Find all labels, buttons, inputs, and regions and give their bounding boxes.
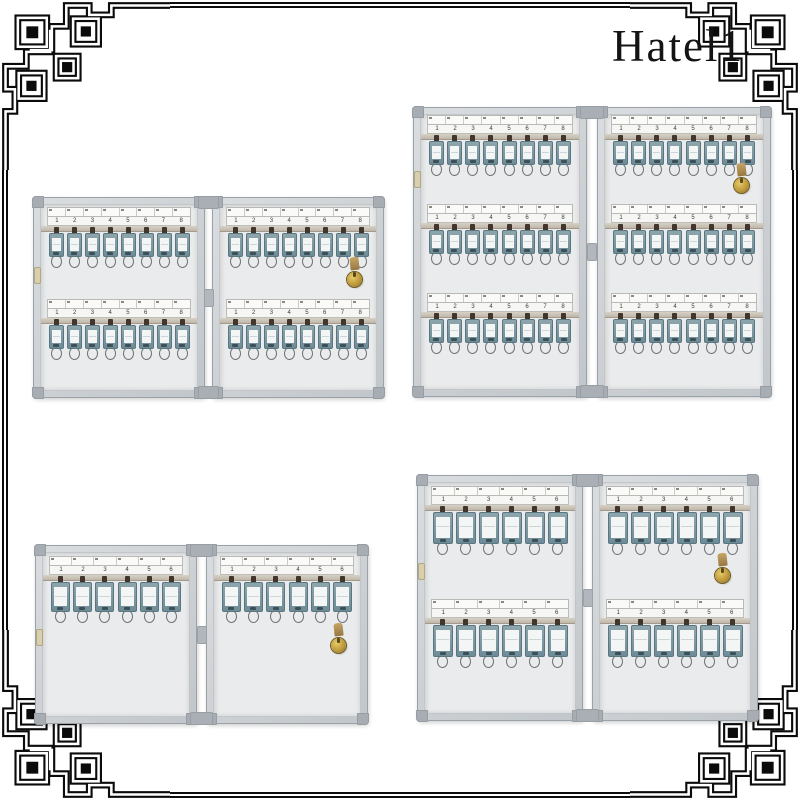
door-latch — [34, 267, 41, 284]
key-tag — [116, 576, 138, 623]
slot-number: 1 — [612, 303, 630, 311]
tag-row — [611, 313, 757, 354]
tag-slot — [304, 344, 310, 347]
tag-slot — [250, 344, 256, 347]
tag-row — [431, 506, 569, 555]
label-cell — [666, 294, 684, 302]
tag-body — [429, 319, 444, 343]
slot-number: 1 — [227, 217, 245, 225]
corner-cap — [373, 387, 385, 399]
key-tag — [427, 135, 445, 176]
tag-slot — [340, 607, 346, 610]
lock-cylinder — [734, 178, 749, 193]
slot-number: 1 — [227, 309, 245, 317]
label-cell — [500, 600, 523, 608]
tag-body — [103, 233, 118, 257]
tag-label — [707, 324, 716, 337]
tag-slot — [107, 344, 113, 347]
key-tag — [675, 506, 698, 555]
tag-slot — [617, 249, 623, 252]
tag-label — [142, 330, 151, 343]
corner-cap — [747, 474, 759, 486]
tag-label — [247, 587, 260, 606]
key-tag — [49, 576, 71, 623]
tag-label — [160, 238, 169, 251]
tag-slot — [654, 338, 660, 341]
key-tag — [629, 506, 652, 555]
label-cell — [612, 116, 630, 124]
label-cell — [139, 557, 161, 565]
tag-label — [121, 587, 134, 606]
tag-label — [436, 517, 450, 538]
key-tag — [500, 135, 518, 176]
cam-lock — [330, 623, 346, 651]
key-tag — [65, 319, 83, 360]
key-tag — [518, 313, 536, 354]
slot-number: 2 — [72, 566, 94, 574]
key-tag — [606, 506, 629, 555]
tag-slot — [250, 607, 256, 610]
key-tag — [244, 227, 262, 268]
slot-number: 6 — [702, 214, 720, 222]
key-tag — [721, 224, 739, 265]
label-cell — [537, 116, 555, 124]
key-cabinet-photo-top-right: 1234567812345678123456781234567812345678… — [413, 107, 771, 397]
key-tag — [702, 224, 720, 265]
slot-number: 4 — [666, 303, 684, 311]
tag-label — [124, 330, 133, 343]
tag-slot — [232, 344, 238, 347]
tag-slot — [161, 252, 167, 255]
tag-slot — [340, 252, 346, 255]
key-tag — [262, 319, 280, 360]
key-tag — [427, 313, 445, 354]
label-cell — [446, 294, 464, 302]
label-cell — [464, 294, 482, 302]
tag-label — [249, 238, 258, 251]
tag-body — [85, 233, 100, 257]
slot-number: 2 — [245, 217, 263, 225]
key-tag — [477, 506, 500, 555]
slot-number: 7 — [155, 217, 173, 225]
tag-body — [631, 141, 646, 165]
tag-slot — [561, 160, 567, 163]
hinge-cap — [198, 386, 219, 399]
label-cell — [50, 557, 72, 565]
tag-label — [336, 587, 349, 606]
key-tag — [280, 319, 298, 360]
number-strip: 12345678 — [611, 125, 757, 134]
tag-body — [483, 141, 498, 165]
tag-label — [160, 330, 169, 343]
tag-slot — [690, 160, 696, 163]
tag-slot — [672, 160, 678, 163]
slot-number: 2 — [630, 496, 653, 504]
tag-slot — [125, 344, 131, 347]
slot-number: 8 — [554, 125, 572, 133]
label-strip — [431, 599, 569, 609]
slot-number: 3 — [648, 214, 666, 222]
cabinet-panel: 123456781234567812345678 — [413, 107, 587, 397]
tag-slot — [470, 338, 476, 341]
tag-label — [88, 238, 97, 251]
number-strip: 123456 — [606, 496, 744, 505]
label-cell — [352, 208, 369, 216]
hinge-knuckle — [587, 243, 597, 261]
label-cell — [137, 300, 155, 308]
label-cell — [653, 487, 676, 495]
lock-key — [736, 163, 746, 177]
tag-body — [354, 233, 369, 257]
slot-number: 2 — [630, 214, 648, 222]
slot-number: 1 — [428, 125, 446, 133]
tag-slot — [635, 249, 641, 252]
tag-label — [616, 324, 625, 337]
slot-number: 5 — [138, 566, 160, 574]
hinge-cap — [576, 709, 599, 722]
tag-body — [686, 230, 701, 254]
tag-body — [649, 141, 664, 165]
slot-number: 2 — [66, 309, 84, 317]
key-tag — [546, 619, 569, 668]
tag-body — [502, 512, 522, 544]
lock-cylinder — [347, 272, 362, 287]
door-latch — [414, 171, 421, 188]
key-tag — [739, 313, 757, 354]
cabinet-panel: 123456781234567812345678 — [597, 107, 771, 397]
label-cell — [648, 116, 666, 124]
slot-number: 3 — [477, 496, 500, 504]
key-tag — [611, 224, 629, 265]
tag-body — [300, 325, 315, 349]
slot-number: 6 — [518, 125, 536, 133]
tag-body — [103, 325, 118, 349]
tag-label — [269, 587, 282, 606]
label-cell — [630, 600, 653, 608]
tag-body — [121, 325, 136, 349]
tag-body — [649, 319, 664, 343]
number-strip: 123456 — [431, 496, 569, 505]
label-cell — [519, 116, 537, 124]
tag-slot — [561, 338, 567, 341]
tag-body — [157, 233, 172, 257]
key-tag — [83, 227, 101, 268]
tag-row — [606, 619, 744, 668]
tag-slot — [440, 652, 446, 655]
tag-label — [267, 238, 276, 251]
tag-slot — [179, 344, 185, 347]
label-cell — [137, 208, 155, 216]
tag-label — [611, 517, 625, 538]
door-latch — [36, 629, 43, 646]
label-cell — [685, 294, 703, 302]
tag-body — [456, 512, 476, 544]
key-tag — [629, 619, 652, 668]
label-cell — [352, 300, 369, 308]
tag-body — [700, 625, 720, 657]
slot-number: 4 — [675, 609, 698, 617]
tag-body — [264, 325, 279, 349]
tag-slot — [268, 252, 274, 255]
key-tag — [555, 224, 573, 265]
slot-number: 3 — [464, 125, 482, 133]
tag-label — [634, 630, 648, 651]
label-cell — [648, 205, 666, 213]
tag-label — [321, 238, 330, 251]
label-cell — [155, 208, 173, 216]
slot-number: 5 — [298, 309, 316, 317]
slot-number: 3 — [464, 303, 482, 311]
key-tag — [500, 506, 523, 555]
slot-number: 8 — [351, 217, 369, 225]
tag-slot — [317, 607, 323, 610]
corner-cap — [416, 474, 428, 486]
slot-number: 3 — [263, 217, 281, 225]
slot-number: 5 — [500, 125, 518, 133]
product-image: Hatel1 12345678123456781234567812345678 … — [0, 0, 800, 800]
label-cell — [523, 487, 546, 495]
lock-key — [349, 257, 359, 271]
tag-slot — [250, 252, 256, 255]
tag-body — [686, 319, 701, 343]
tag-slot — [532, 539, 538, 542]
slot-number: 5 — [684, 125, 702, 133]
slot-number: 4 — [666, 125, 684, 133]
key-tag — [316, 319, 334, 360]
slot-number: 5 — [309, 566, 331, 574]
tag-slot — [727, 338, 733, 341]
tag-label — [726, 517, 740, 538]
tag-slot — [543, 160, 549, 163]
label-cell — [243, 557, 265, 565]
key-tag — [629, 313, 647, 354]
tag-label — [267, 330, 276, 343]
tag-body — [649, 230, 664, 254]
tag-slot — [463, 539, 469, 542]
label-cell — [721, 600, 743, 608]
tag-slot — [322, 344, 328, 347]
corner-cap — [412, 106, 424, 118]
tag-label — [634, 324, 643, 337]
label-cell — [478, 487, 501, 495]
frame-corner-ornament — [0, 0, 170, 170]
tag-body — [548, 625, 568, 657]
tag-slot — [125, 252, 131, 255]
tag-slot — [57, 607, 63, 610]
label-cell — [428, 116, 446, 124]
tag-label — [707, 146, 716, 159]
tag-body — [95, 582, 114, 612]
slot-number: 2 — [66, 217, 84, 225]
label-cell — [482, 205, 500, 213]
key-tag — [244, 319, 262, 360]
corner-cap — [357, 544, 369, 556]
tag-label — [670, 324, 679, 337]
tag-body — [502, 319, 517, 343]
slot-number: 6 — [720, 496, 743, 504]
label-cell — [281, 300, 299, 308]
slot-number: 3 — [652, 609, 675, 617]
tag-body — [429, 230, 444, 254]
label-cell — [555, 116, 572, 124]
key-tag — [666, 313, 684, 354]
key-tag — [698, 506, 721, 555]
tag-body — [289, 582, 308, 612]
label-cell — [478, 600, 501, 608]
key-tag — [721, 313, 739, 354]
label-cell — [428, 294, 446, 302]
hinge-cap — [576, 474, 599, 487]
tag-body — [67, 233, 82, 257]
label-cell — [546, 487, 568, 495]
tag-slot — [708, 249, 714, 252]
tag-body — [266, 582, 285, 612]
tag-body — [525, 625, 545, 657]
key-tag — [137, 227, 155, 268]
tag-slot — [488, 249, 494, 252]
tag-slot — [672, 338, 678, 341]
tag-body — [140, 582, 159, 612]
slot-number: 1 — [432, 496, 455, 504]
slot-number: 1 — [607, 609, 630, 617]
key-tag — [648, 313, 666, 354]
label-strip — [427, 115, 573, 125]
tag-body — [608, 625, 628, 657]
corner-cap — [357, 713, 369, 725]
tag-slot — [433, 160, 439, 163]
label-cell — [334, 208, 352, 216]
tag-row — [427, 135, 573, 176]
label-cell — [546, 600, 568, 608]
slot-number: 2 — [446, 125, 464, 133]
tag-row — [49, 576, 183, 623]
slot-number: 2 — [245, 309, 263, 317]
label-cell — [155, 300, 173, 308]
label-cell — [653, 600, 676, 608]
tag-body — [67, 325, 82, 349]
label-strip — [220, 556, 354, 566]
tag-label — [486, 324, 495, 337]
tag-slot — [451, 160, 457, 163]
key-tag — [684, 135, 702, 176]
label-cell — [739, 116, 756, 124]
tag-body — [429, 141, 444, 165]
slot-number: 7 — [334, 309, 352, 317]
slot-number: 1 — [50, 566, 72, 574]
tag-slot — [617, 160, 623, 163]
label-cell — [84, 300, 102, 308]
tag-slot — [440, 539, 446, 542]
label-cell — [227, 300, 245, 308]
tag-slot — [661, 539, 667, 542]
slot-number: 1 — [432, 609, 455, 617]
tag-slot — [89, 344, 95, 347]
tag-slot — [690, 338, 696, 341]
key-tag — [280, 227, 298, 268]
label-cell — [501, 205, 519, 213]
key-tag — [629, 224, 647, 265]
label-strip — [431, 486, 569, 496]
slot-number: 3 — [84, 217, 102, 225]
tag-label — [52, 330, 61, 343]
label-strip — [47, 207, 191, 217]
label-strip — [226, 207, 370, 217]
tag-body — [704, 141, 719, 165]
tag-slot — [358, 344, 364, 347]
number-strip: 12345678 — [47, 217, 191, 226]
tag-label — [339, 330, 348, 343]
tag-body — [282, 325, 297, 349]
tag-label — [541, 146, 550, 159]
tag-body — [723, 625, 743, 657]
tag-slot — [463, 652, 469, 655]
tag-label — [292, 587, 305, 606]
slot-number: 6 — [518, 303, 536, 311]
tag-slot — [509, 539, 515, 542]
number-strip: 123456 — [49, 566, 183, 575]
tag-label — [357, 238, 366, 251]
key-tag — [611, 135, 629, 176]
tag-body — [175, 325, 190, 349]
slot-number: 6 — [137, 309, 155, 317]
label-cell — [94, 557, 116, 565]
corner-cap — [760, 386, 772, 398]
key-tag — [262, 227, 280, 268]
slot-number: 1 — [221, 566, 243, 574]
slot-number: 2 — [243, 566, 265, 574]
tag-slot — [486, 652, 492, 655]
label-cell — [464, 205, 482, 213]
slot-number: 4 — [482, 125, 500, 133]
tag-label — [98, 587, 111, 606]
key-tag — [482, 135, 500, 176]
tag-label — [559, 146, 568, 159]
tag-body — [722, 230, 737, 254]
label-strip — [611, 204, 757, 214]
tag-label — [551, 630, 565, 651]
number-strip: 12345678 — [226, 309, 370, 318]
hinge-knuckle — [197, 626, 207, 644]
tag-body — [228, 325, 243, 349]
cam-lock — [714, 553, 730, 581]
key-tag — [445, 224, 463, 265]
label-cell — [332, 557, 353, 565]
key-tag — [537, 224, 555, 265]
key-tag — [332, 576, 354, 623]
slot-number: 6 — [720, 609, 743, 617]
tag-body — [654, 512, 674, 544]
tag-slot — [506, 338, 512, 341]
tag-body — [704, 319, 719, 343]
tag-body — [538, 141, 553, 165]
key-tag — [546, 506, 569, 555]
key-cabinet-photo-bottom-left: 123456123456 — [35, 545, 368, 724]
key-tag — [454, 506, 477, 555]
label-cell — [685, 116, 703, 124]
label-cell — [739, 294, 756, 302]
label-cell — [245, 208, 263, 216]
tag-label — [231, 238, 240, 251]
key-tag — [83, 319, 101, 360]
slot-number: 3 — [652, 496, 675, 504]
key-tag — [454, 619, 477, 668]
slot-number: 8 — [738, 214, 756, 222]
tag-slot — [340, 344, 346, 347]
slot-number: 1 — [612, 214, 630, 222]
tag-body — [162, 582, 181, 612]
label-cell — [648, 294, 666, 302]
slot-number: 5 — [684, 303, 702, 311]
